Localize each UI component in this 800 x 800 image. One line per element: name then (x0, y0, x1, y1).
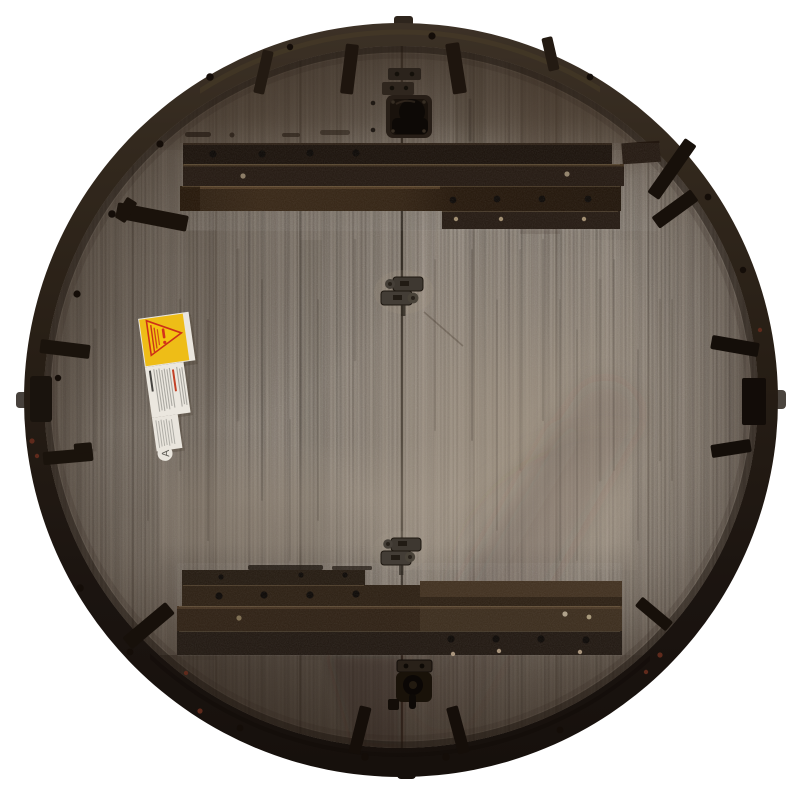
svg-text:A: A (160, 450, 172, 458)
